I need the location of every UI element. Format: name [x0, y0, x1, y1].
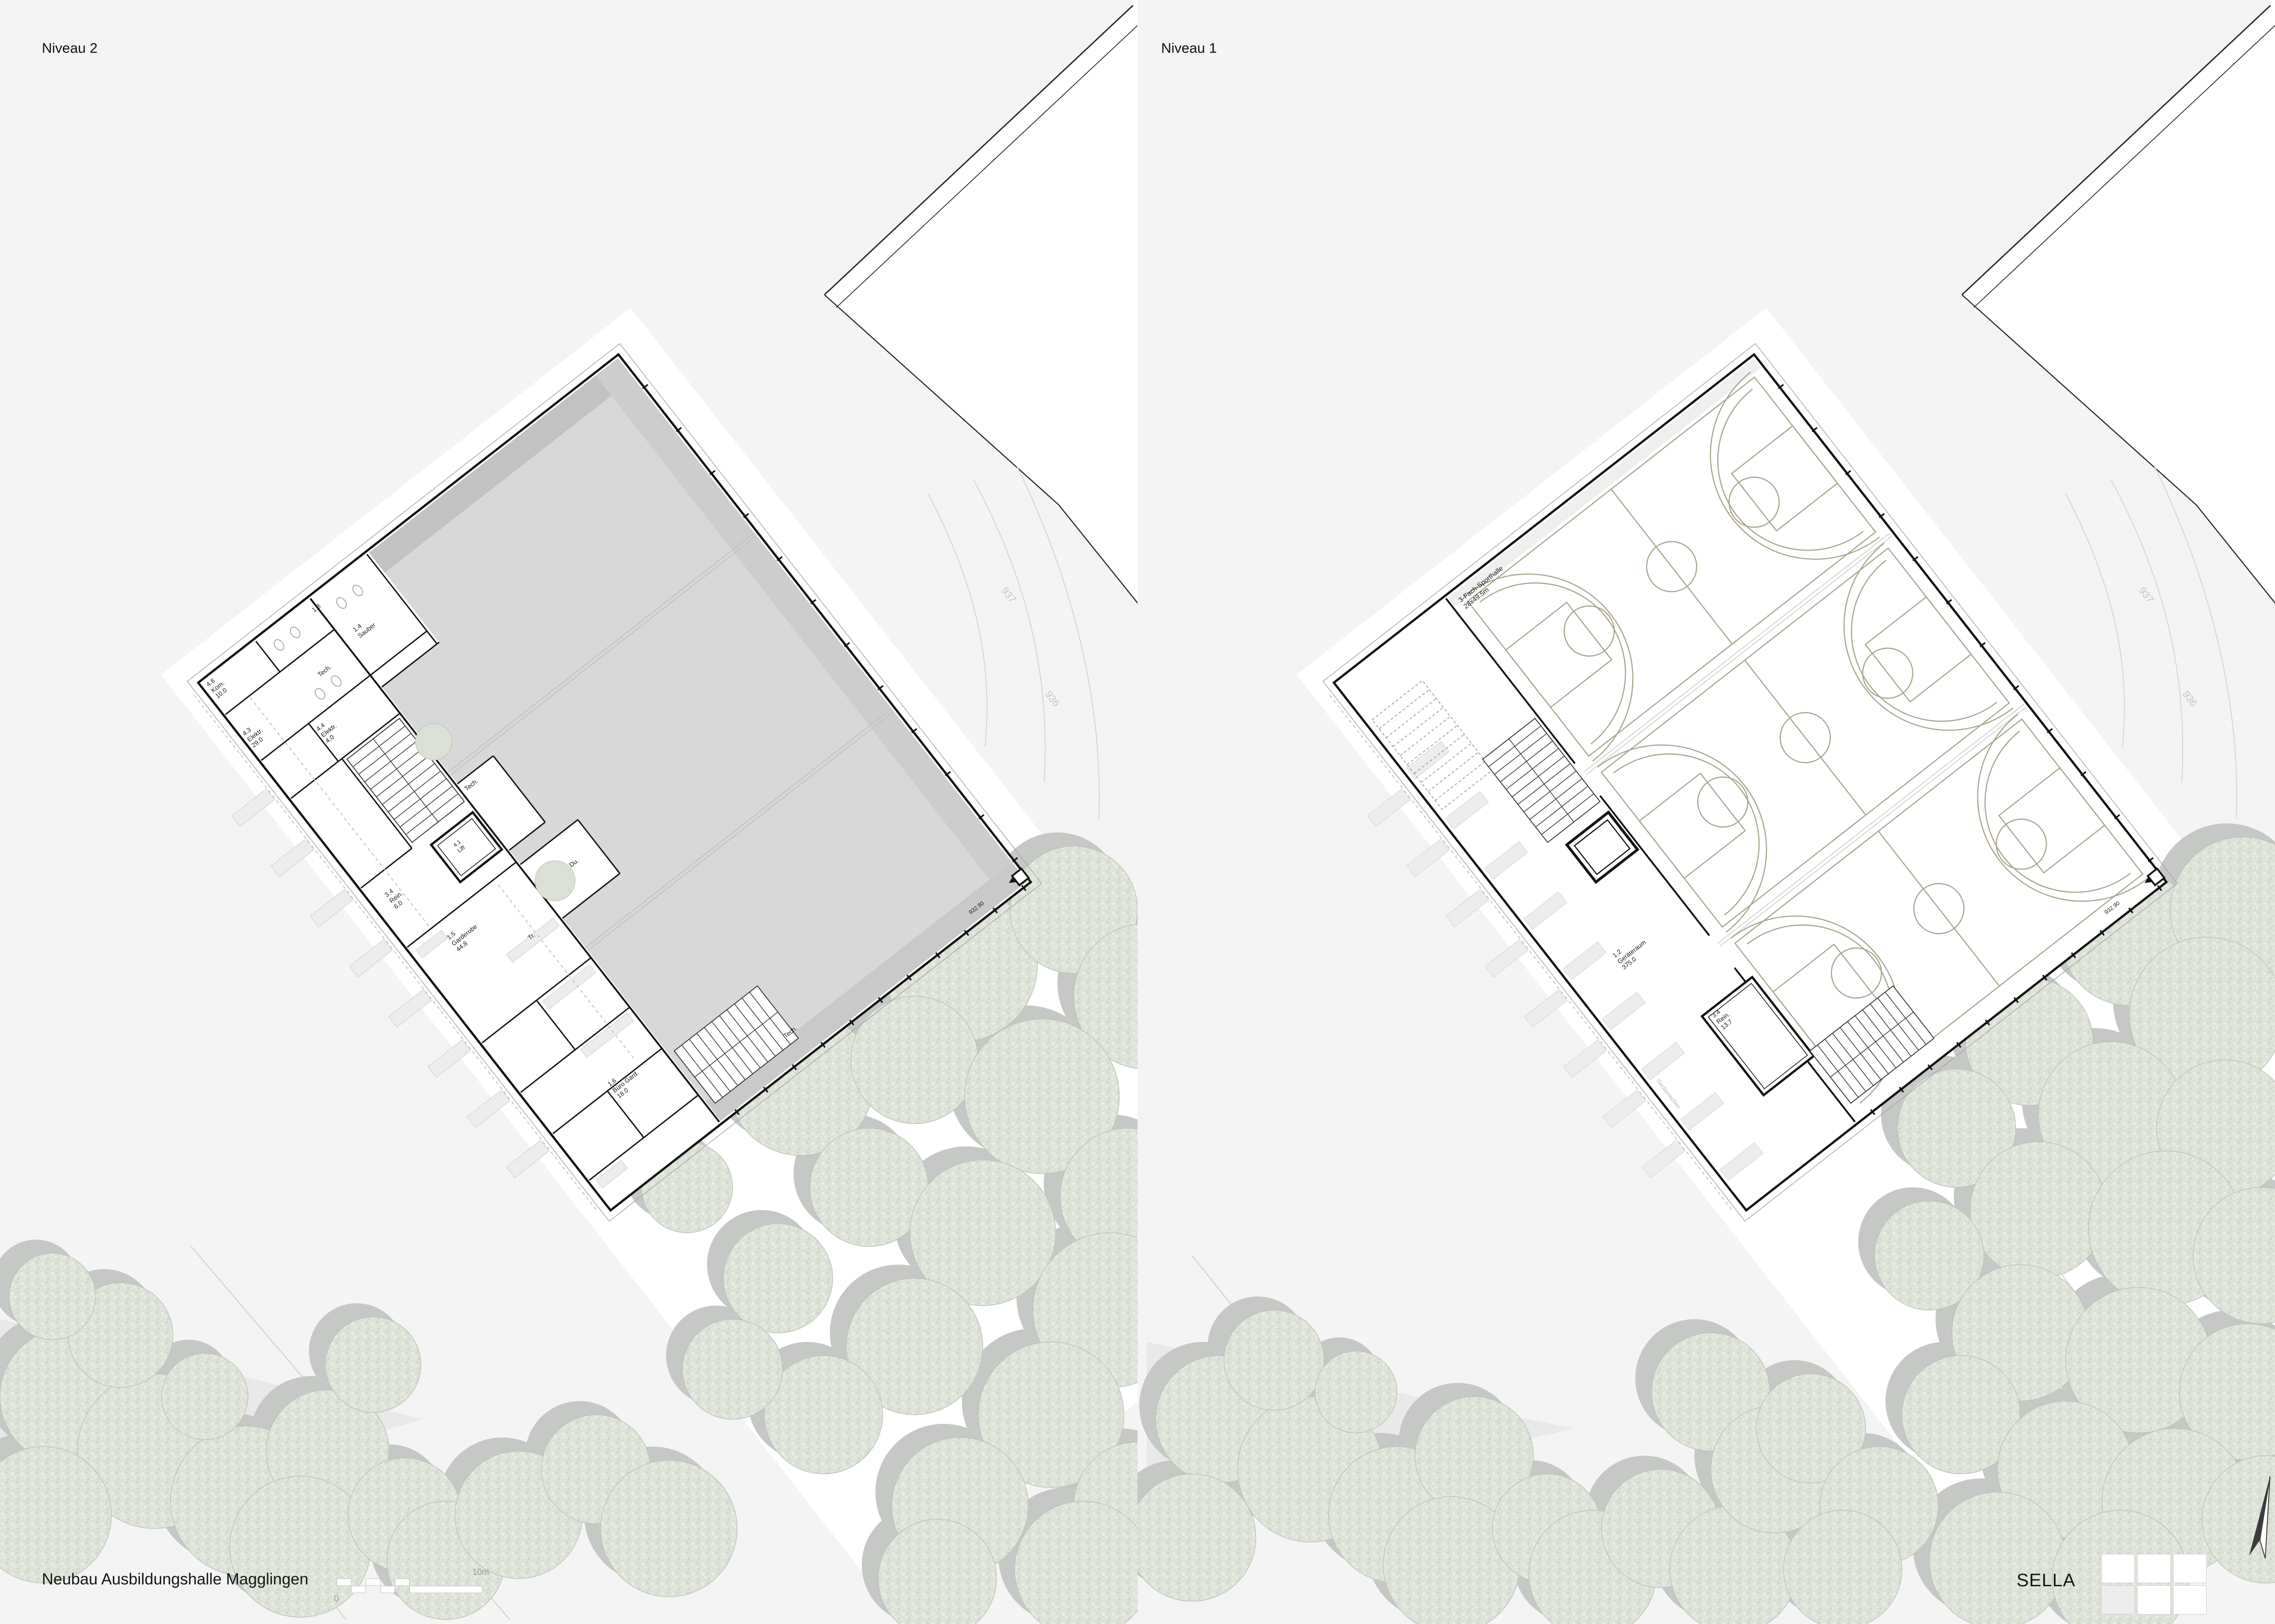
drawing-sheet: 937 936 937 936 — [0, 0, 2275, 1624]
neighbour-building — [824, 0, 1165, 637]
panel-title-niveau1: Niveau 1 — [1161, 40, 1217, 56]
project-title: Neubau Ausbildungshalle Magglingen — [42, 1570, 308, 1589]
scale-bar: 0 10m — [337, 1579, 482, 1594]
scale-zero-label: 0 — [334, 1594, 339, 1604]
contour-label: 936 — [2180, 689, 2199, 709]
sheet-index-current — [2101, 1585, 2135, 1614]
contour-label: 937 — [2137, 585, 2156, 605]
contour-label: 937 — [999, 585, 1018, 605]
scale-max-label: 10m — [472, 1568, 489, 1578]
architect-name: SELLA — [2017, 1570, 2076, 1591]
neighbour-building — [1962, 0, 2275, 637]
contour-label: 936 — [1043, 689, 1062, 709]
panel-title-niveau2: Niveau 2 — [42, 40, 97, 56]
